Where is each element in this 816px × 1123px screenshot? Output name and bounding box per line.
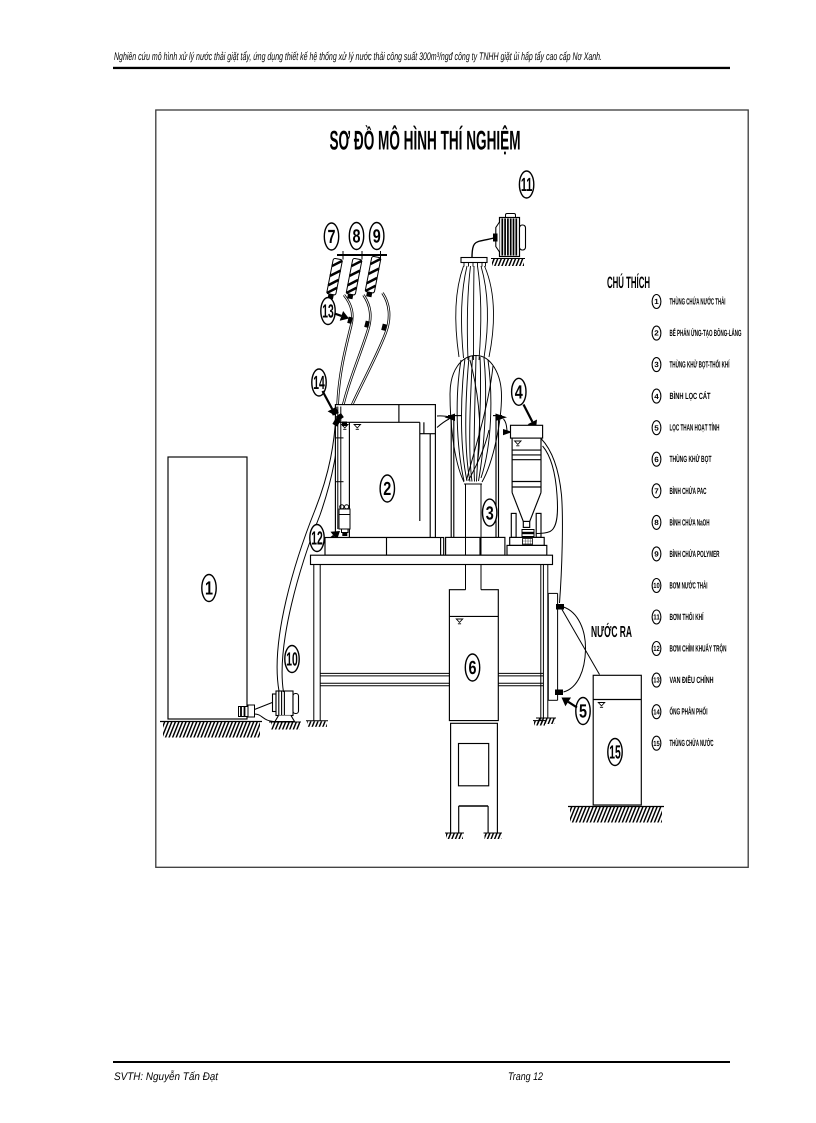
- svg-text:BƠM NƯỚC THẢI: BƠM NƯỚC THẢI: [670, 580, 708, 591]
- svg-text:11: 11: [653, 613, 660, 622]
- svg-text:BÌNH CHỨA NaOH: BÌNH CHỨA NaOH: [670, 517, 710, 527]
- svg-text:CHÚ THÍCH: CHÚ THÍCH: [607, 273, 650, 292]
- svg-text:15: 15: [653, 739, 660, 748]
- svg-text:BỂ PHẢN ỨNG-TẠO BÔNG-LẮNG: BỂ PHẢN ỨNG-TẠO BÔNG-LẮNG: [670, 327, 742, 338]
- svg-text:9: 9: [654, 550, 659, 559]
- svg-text:13: 13: [653, 676, 660, 685]
- svg-text:12: 12: [653, 644, 660, 653]
- svg-text:11: 11: [521, 175, 533, 196]
- svg-text:6: 6: [469, 658, 477, 679]
- svg-text:BÌNH CHỨA POLYMER: BÌNH CHỨA POLYMER: [670, 549, 720, 559]
- svg-text:SƠ ĐỒ MÔ HÌNH THÍ NGHIỆM: SƠ ĐỒ MÔ HÌNH THÍ NGHIỆM: [330, 125, 521, 156]
- svg-text:15: 15: [609, 743, 621, 764]
- svg-text:5: 5: [579, 702, 587, 723]
- svg-text:5: 5: [654, 423, 659, 432]
- svg-text:THÙNG KHỬ BỌT: THÙNG KHỬ BỌT: [670, 453, 712, 464]
- svg-text:6: 6: [654, 455, 659, 464]
- svg-text:LỌC THAN HOẠT TÍNH: LỌC THAN HOẠT TÍNH: [670, 423, 720, 433]
- svg-text:SVTH: Nguyễn Tấn Đạt: SVTH: Nguyễn Tấn Đạt: [114, 1070, 219, 1083]
- svg-text:BƠM CHÌM KHUẤY TRỘN: BƠM CHÌM KHUẤY TRỘN: [670, 643, 727, 654]
- svg-text:3: 3: [654, 360, 659, 369]
- svg-text:1: 1: [654, 297, 659, 306]
- svg-text:ỐNG PHÂN PHỐI: ỐNG PHÂN PHỐI: [670, 706, 708, 717]
- svg-text:BÌNH LỌC CÁT: BÌNH LỌC CÁT: [670, 391, 711, 401]
- svg-text:THÙNG CHỨA NƯỚC THẢI: THÙNG CHỨA NƯỚC THẢI: [670, 296, 726, 307]
- svg-text:2: 2: [654, 329, 659, 338]
- svg-text:12: 12: [311, 529, 323, 550]
- svg-text:BƠM THỔI KHÍ: BƠM THỔI KHÍ: [670, 611, 704, 622]
- svg-text:THÙNG KHỬ BỌT-THỔI KHÍ: THÙNG KHỬ BỌT-THỔI KHÍ: [670, 359, 730, 370]
- svg-text:14: 14: [653, 707, 660, 716]
- svg-text:Trang 12: Trang 12: [508, 1071, 543, 1083]
- svg-text:3: 3: [486, 503, 494, 524]
- svg-text:7: 7: [654, 486, 659, 495]
- svg-text:10: 10: [653, 581, 660, 590]
- svg-text:THÙNG CHỨA NƯỚC: THÙNG CHỨA NƯỚC: [670, 738, 714, 748]
- svg-text:8: 8: [353, 227, 361, 248]
- svg-text:VAN ĐIỀU CHỈNH: VAN ĐIỀU CHỈNH: [670, 674, 714, 685]
- svg-text:1: 1: [205, 579, 213, 600]
- svg-text:8: 8: [654, 518, 659, 527]
- svg-text:4: 4: [515, 383, 523, 404]
- svg-text:10: 10: [286, 650, 298, 671]
- svg-text:13: 13: [322, 302, 334, 323]
- svg-text:NƯỚC RA: NƯỚC RA: [591, 622, 632, 641]
- svg-text:2: 2: [383, 479, 391, 500]
- svg-text:BÌNH CHỨA PAC: BÌNH CHỨA PAC: [670, 486, 707, 496]
- svg-text:9: 9: [373, 227, 381, 248]
- svg-text:7: 7: [328, 227, 336, 248]
- svg-text:Nghiên cứu mô hình xử lý nước: Nghiên cứu mô hình xử lý nước thải giặt …: [114, 51, 602, 63]
